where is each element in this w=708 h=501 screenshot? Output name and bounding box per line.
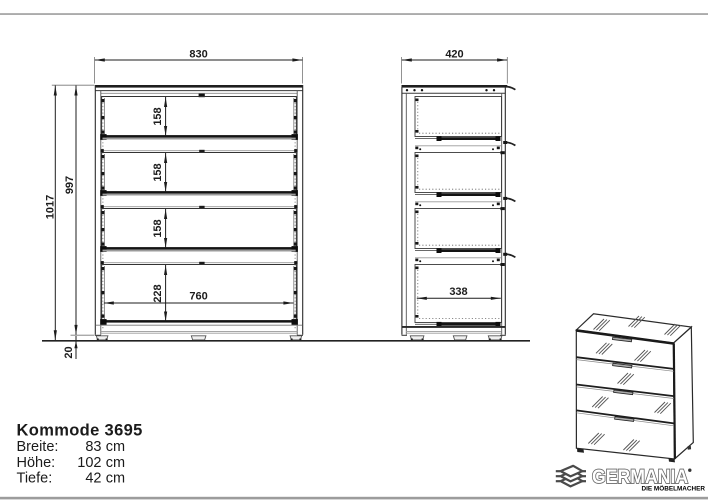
svg-text:760: 760 [189,291,207,303]
svg-text:cm: cm [106,470,125,486]
svg-text:158: 158 [152,107,164,125]
svg-text:997: 997 [64,176,76,194]
svg-text:338: 338 [449,286,467,298]
svg-text:830: 830 [189,49,207,61]
svg-text:420: 420 [445,49,463,61]
svg-text:1017: 1017 [45,195,57,219]
svg-text:cm: cm [106,439,125,455]
svg-text:Höhe:: Höhe: [17,455,56,471]
svg-text:Kommode 3695: Kommode 3695 [17,422,143,440]
svg-text:Tiefe:: Tiefe: [17,470,53,486]
svg-text:cm: cm [106,455,125,471]
svg-text:Breite:: Breite: [17,439,59,455]
svg-text:20: 20 [63,346,75,358]
svg-text:GERMANIA: GERMANIA [592,465,688,487]
svg-text:102: 102 [77,455,101,471]
svg-text:228: 228 [152,284,164,302]
svg-text:DIE MÖBELMACHER: DIE MÖBELMACHER [642,484,706,493]
svg-text:158: 158 [152,219,164,237]
svg-text:83: 83 [85,439,101,455]
svg-text:158: 158 [152,163,164,181]
svg-text:42: 42 [85,470,101,486]
